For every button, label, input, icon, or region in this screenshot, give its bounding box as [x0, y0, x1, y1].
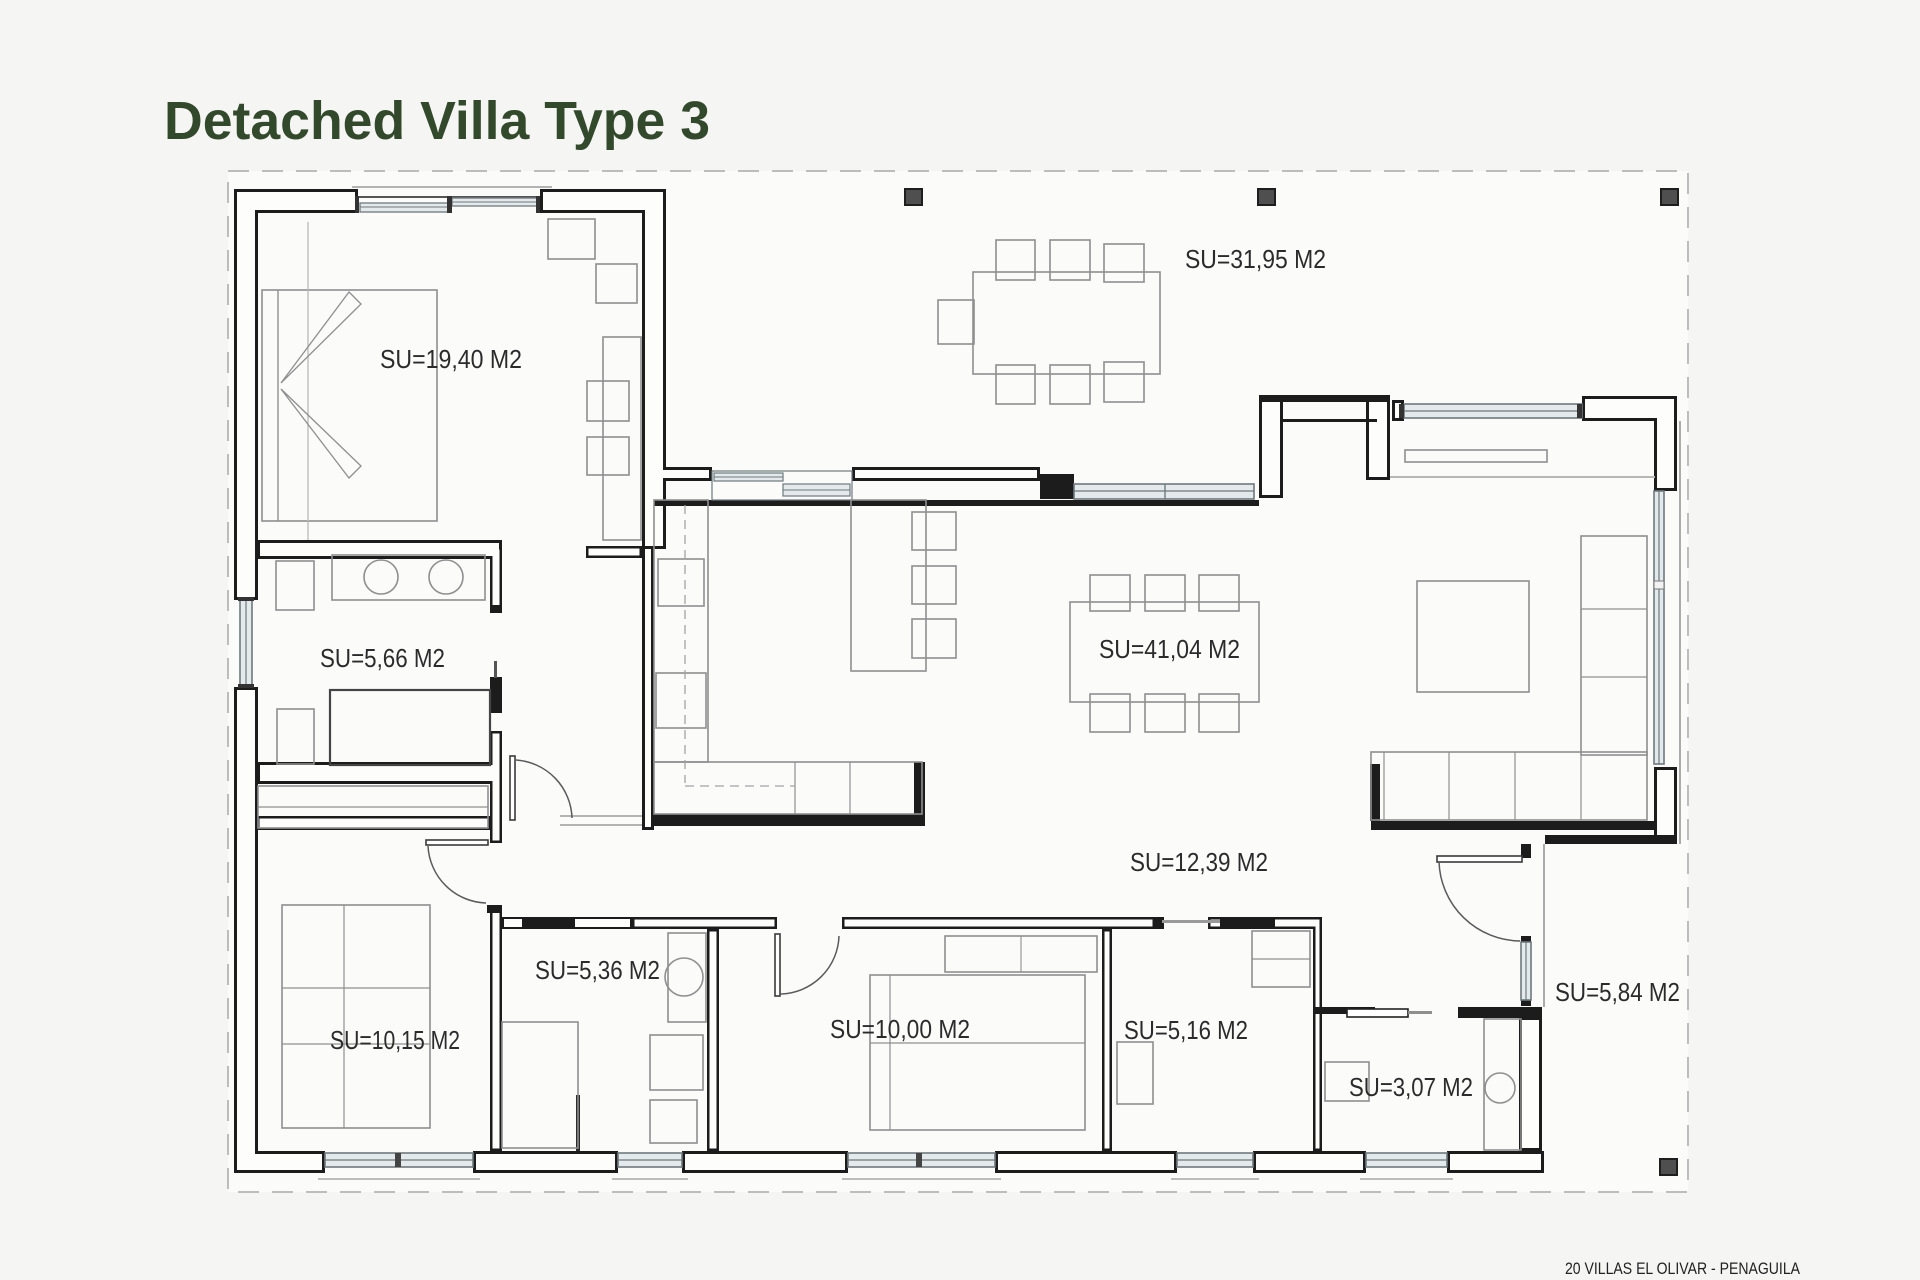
svg-text:20 VILLAS EL OLIVAR - PENAGUI: 20 VILLAS EL OLIVAR - PENAGUILA — [1565, 1259, 1801, 1278]
svg-text:SU=10,15 M2: SU=10,15 M2 — [330, 1025, 460, 1055]
svg-text:SU=5,36 M2: SU=5,36 M2 — [535, 955, 660, 985]
svg-text:SU=19,40 M2: SU=19,40 M2 — [380, 344, 522, 374]
svg-text:SU=5,66 M2: SU=5,66 M2 — [320, 643, 445, 673]
svg-text:SU=10,00 M2: SU=10,00 M2 — [830, 1014, 970, 1044]
svg-text:SU=5,16 M2: SU=5,16 M2 — [1124, 1015, 1248, 1045]
svg-text:Detached Villa Type 3: Detached Villa Type 3 — [164, 91, 710, 151]
svg-text:SU=31,95 M2: SU=31,95 M2 — [1185, 244, 1326, 274]
svg-text:SU=3,07 M2: SU=3,07 M2 — [1349, 1072, 1473, 1102]
svg-text:SU=41,04 M2: SU=41,04 M2 — [1099, 634, 1240, 664]
svg-text:SU=5,84 M2: SU=5,84 M2 — [1555, 977, 1680, 1007]
svg-text:SU=12,39 M2: SU=12,39 M2 — [1130, 847, 1268, 877]
